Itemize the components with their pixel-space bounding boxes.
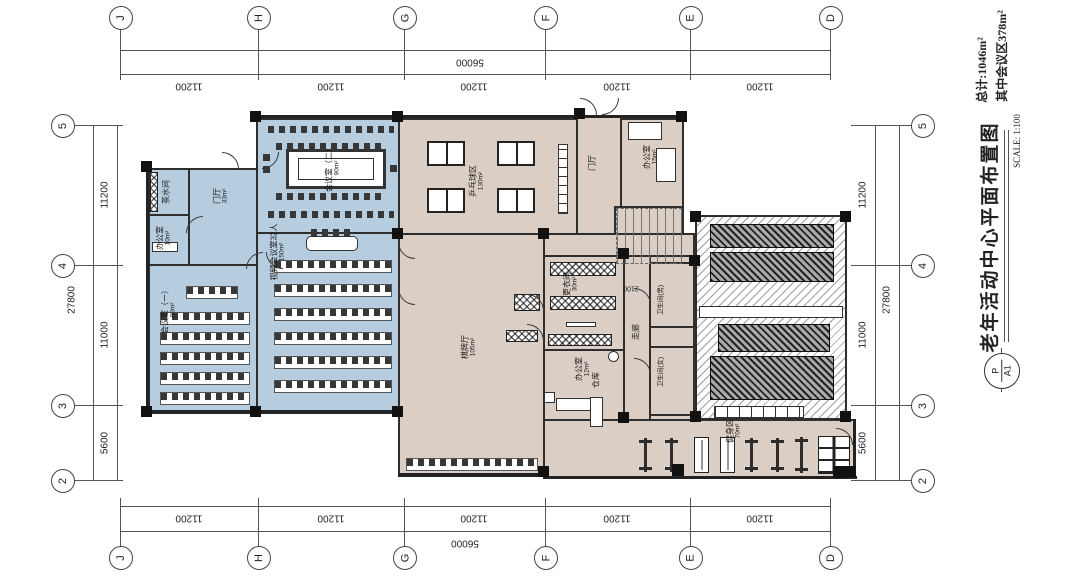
- wall: [398, 473, 547, 477]
- grid-leader: [830, 28, 831, 80]
- grid-leader: [830, 498, 831, 546]
- title-underline: [1008, 130, 1009, 342]
- room-area: 12m²: [584, 357, 591, 381]
- hatched-element: [710, 252, 834, 282]
- grid-bubble-J-bottom: J: [109, 546, 133, 570]
- room-toilet-female: [649, 346, 695, 416]
- chair-row: [311, 229, 353, 236]
- label-office-15: 办公室15m²: [643, 145, 660, 169]
- grid-leader: [73, 265, 123, 266]
- grid-number: 3: [57, 403, 69, 409]
- room-name: 棋牌厅: [461, 335, 470, 359]
- locker-shelf: [550, 262, 616, 276]
- room-toilet-male: [649, 262, 695, 328]
- grid-leader: [851, 480, 911, 481]
- label-locker: 更衣间30m²: [563, 272, 580, 296]
- desk-row: [160, 352, 250, 365]
- scale-label: SCALE: 1:100: [1012, 114, 1022, 168]
- side-counter: [558, 144, 568, 214]
- grid-bubble-G-top: G: [393, 6, 417, 30]
- pingpong-table: [497, 188, 535, 213]
- dim-line: [117, 125, 118, 480]
- column: [250, 111, 261, 122]
- dim-line: [899, 125, 900, 480]
- grid-number: 5: [57, 123, 69, 129]
- label-foyer-left: 门厅33m²: [213, 188, 230, 204]
- chair: [390, 165, 397, 172]
- grid-letter: E: [685, 554, 697, 561]
- grid-bubble-4-left: 4: [51, 254, 75, 278]
- hatched-element: [710, 356, 834, 400]
- grid-bubble-H-top: H: [247, 6, 271, 30]
- desk-row: [274, 284, 392, 297]
- bench-row: [406, 458, 538, 471]
- grid-leader: [258, 498, 259, 546]
- fitness-machine: [776, 438, 779, 472]
- desk-row: [274, 260, 392, 273]
- label-corridor: 走廊: [631, 324, 640, 340]
- door-arc: [580, 98, 597, 115]
- floor-plan-sheet: 56000 11200 11200 11200 11200 11200 1120…: [0, 0, 1074, 576]
- room-name: 仓库: [591, 372, 600, 388]
- existing-corridor: [699, 306, 843, 318]
- room-name: 卫生间(男): [657, 285, 664, 315]
- grid-bubble-2-right: 2: [911, 469, 935, 493]
- grid-bubble-F-top: F: [534, 6, 558, 30]
- dim-bottom: 11200: [317, 513, 344, 524]
- room-name: 门厅: [587, 155, 596, 171]
- grid-number: 2: [917, 478, 929, 484]
- label-tea-room: 茶水间: [161, 180, 170, 204]
- room-name: 会议室（一）: [161, 286, 170, 334]
- grid-bubble-4-right: 4: [911, 254, 935, 278]
- column: [250, 406, 261, 417]
- room-area: 150m²: [279, 224, 286, 281]
- desk-row: [274, 356, 392, 369]
- grid-letter: D: [825, 14, 837, 22]
- grid-letter: H: [253, 554, 265, 562]
- label-office-10: 办公室10m²: [156, 226, 173, 250]
- grid-letter: H: [253, 14, 265, 22]
- desk-row: [160, 392, 250, 405]
- dim-line: [93, 125, 94, 480]
- round-table: [608, 351, 619, 362]
- label-office-12: 办公室12m²: [575, 357, 592, 381]
- bench: [566, 322, 596, 327]
- room-area: 15m²: [652, 145, 659, 169]
- dim-top: 11200: [317, 81, 344, 92]
- column: [690, 211, 701, 222]
- dim-corridor: 2100: [623, 285, 639, 292]
- column: [392, 228, 403, 239]
- wall: [146, 166, 149, 414]
- grid-bubble-D-bottom: D: [819, 546, 843, 570]
- stamp-code: P: [990, 360, 1002, 382]
- label-video-conference: 视频会议室32人150m²: [270, 224, 287, 281]
- armchair: [544, 392, 555, 403]
- grid-leader: [851, 125, 911, 126]
- column: [676, 111, 687, 122]
- grid-leader: [690, 28, 691, 80]
- room-name: 更衣间: [563, 272, 572, 296]
- title-underline: [1004, 130, 1005, 342]
- desk-row: [274, 308, 392, 321]
- room-name: 办公室: [575, 357, 584, 381]
- label-meeting-1: 会议室（一）80m²: [161, 286, 178, 334]
- column: [392, 406, 403, 417]
- column: [689, 255, 700, 266]
- grid-leader: [258, 28, 259, 80]
- wall: [146, 410, 402, 414]
- fitness-machine: [800, 437, 803, 473]
- wall: [543, 476, 857, 479]
- dim-line: [120, 506, 830, 507]
- drawing-number-stamp: P A1: [984, 353, 1020, 389]
- column: [141, 406, 152, 417]
- room-area: 30m²: [572, 272, 579, 296]
- dim-left: 11200: [99, 181, 111, 208]
- grid-leader: [690, 498, 691, 546]
- dim-top: 11200: [175, 81, 202, 92]
- grid-number: 3: [917, 403, 929, 409]
- room-name: 视频会议室32人: [270, 224, 279, 281]
- grid-bubble-F-bottom: F: [534, 546, 558, 570]
- label-storage: 仓库: [591, 372, 600, 388]
- grid-number: 4: [57, 263, 69, 269]
- dim-right: 11000: [857, 321, 869, 348]
- room-name: 健身区: [726, 419, 735, 443]
- note-total-area: 总计:1046m²: [976, 37, 990, 103]
- note-meeting-area: 其中会议区378m²: [996, 10, 1010, 102]
- door-arc: [602, 98, 619, 115]
- locker-shelf: [550, 296, 616, 310]
- cabinet: [590, 397, 603, 427]
- column: [141, 161, 152, 172]
- dim-left: 11000: [99, 321, 111, 348]
- grid-letter: G: [399, 14, 411, 23]
- grid-bubble-H-bottom: H: [247, 546, 271, 570]
- room-area: 105m²: [470, 335, 477, 359]
- dim-left: 5600: [99, 432, 111, 454]
- grid-leader: [851, 405, 911, 406]
- hatched-element: [710, 224, 834, 248]
- room-table-tennis: [398, 118, 578, 235]
- window-band: [714, 406, 804, 418]
- pingpong-table: [427, 188, 465, 213]
- grid-number: 2: [57, 478, 69, 484]
- column: [840, 411, 851, 422]
- grid-leader: [545, 498, 546, 546]
- grid-leader: [73, 125, 123, 126]
- locker-shelf: [548, 334, 612, 346]
- office-desk: [628, 122, 662, 140]
- stamp-sheet-size: A1: [1002, 365, 1013, 376]
- pingpong-table: [497, 141, 535, 166]
- room-area: 10m²: [165, 226, 172, 250]
- exercise-bike: [644, 438, 647, 472]
- grid-letter: J: [115, 555, 127, 561]
- grid-leader: [851, 265, 911, 266]
- fitness-machine: [750, 438, 753, 472]
- column: [618, 248, 629, 259]
- room-name: 办公室: [156, 226, 165, 250]
- dim-bottom: 11200: [603, 513, 630, 524]
- grid-number: 5: [917, 123, 929, 129]
- grid-letter: E: [685, 14, 697, 21]
- room-area: 90m²: [334, 144, 341, 192]
- grid-bubble-5-left: 5: [51, 114, 75, 138]
- pingpong-table: [427, 141, 465, 166]
- grid-leader: [73, 405, 123, 406]
- grid-leader: [404, 498, 405, 546]
- dim-bottom: 11200: [460, 513, 487, 524]
- grid-leader: [404, 28, 405, 80]
- grid-bubble-E-bottom: E: [679, 546, 703, 570]
- room-area: 70m²: [735, 419, 742, 443]
- column: [538, 466, 549, 477]
- dim-line: [120, 74, 830, 75]
- grid-letter: G: [399, 554, 411, 563]
- grid-bubble-2-left: 2: [51, 469, 75, 493]
- column: [690, 411, 701, 422]
- treadmill: [694, 437, 709, 473]
- room-name: 会议室（二）: [325, 144, 334, 192]
- desk-row: [274, 380, 392, 393]
- head-table: [306, 236, 358, 251]
- label-chess-hall: 棋牌厅105m²: [461, 335, 478, 359]
- tea-counter: [150, 172, 158, 212]
- dim-right: 11200: [857, 181, 869, 208]
- grid-letter: D: [825, 554, 837, 562]
- dim-total-left: 27800: [66, 286, 78, 314]
- dim-right: 5600: [857, 432, 869, 454]
- column: [392, 111, 403, 122]
- grid-bubble-E-top: E: [679, 6, 703, 30]
- grid-leader: [545, 28, 546, 80]
- column: [538, 228, 549, 239]
- grid-bubble-J-top: J: [109, 6, 133, 30]
- column: [840, 211, 851, 222]
- dim-line: [120, 50, 830, 51]
- stamp-content: P A1: [990, 360, 1014, 382]
- room-area: 130m²: [478, 165, 485, 197]
- grid-leader: [120, 498, 121, 546]
- dim-top: 11200: [460, 81, 487, 92]
- grid-letter: F: [540, 15, 552, 22]
- room-name: 茶水间: [161, 180, 170, 204]
- label-table-tennis: 乒乓球区130m²: [469, 165, 486, 197]
- label-meeting-2: 会议室（二）90m²: [325, 144, 342, 192]
- room-name: 走廊: [631, 324, 640, 340]
- grid-bubble-3-left: 3: [51, 394, 75, 418]
- label-toilet-male: 卫生间(男): [657, 285, 664, 315]
- dim-total-right: 27800: [881, 286, 893, 314]
- grid-bubble-5-right: 5: [911, 114, 935, 138]
- column: [618, 412, 629, 423]
- chair-row: [276, 193, 386, 200]
- door-arc: [222, 152, 239, 169]
- desk-row: [160, 372, 250, 385]
- room-name: 门厅: [213, 188, 222, 204]
- room-area: 33m²: [222, 188, 229, 204]
- wall: [256, 115, 686, 118]
- chair-row: [268, 126, 394, 133]
- desk-row: [274, 332, 392, 345]
- equipment-block: [672, 464, 684, 476]
- grid-letter: F: [540, 555, 552, 562]
- dim-line: [120, 531, 830, 532]
- dim-total-bottom: 56000: [451, 538, 479, 549]
- dim-bottom: 11200: [746, 513, 773, 524]
- dim-bottom: 11200: [175, 513, 202, 524]
- grid-bubble-D-top: D: [819, 6, 843, 30]
- drawing-title: 老年活动中心平面布置图: [980, 121, 1002, 352]
- dim-line: [875, 125, 876, 480]
- head-desk-row: [186, 286, 238, 299]
- grid-number: 4: [917, 263, 929, 269]
- grid-letter: J: [115, 15, 127, 21]
- label-foyer-right: 门厅: [587, 155, 596, 171]
- chair-row: [268, 211, 394, 218]
- grid-bubble-G-bottom: G: [393, 546, 417, 570]
- dim-total-top: 56000: [456, 57, 484, 68]
- hatched-element: [718, 324, 830, 352]
- dim-top: 11200: [746, 81, 773, 92]
- label-toilet-female: 卫生间(女): [657, 357, 664, 387]
- room-name: 乒乓球区: [469, 165, 478, 197]
- grid-leader: [120, 28, 121, 80]
- room-name: 卫生间(女): [657, 357, 664, 387]
- grid-bubble-3-right: 3: [911, 394, 935, 418]
- label-fitness: 健身区70m²: [726, 419, 743, 443]
- column: [845, 466, 856, 477]
- room-name: 办公室: [643, 145, 652, 169]
- dim-top: 11200: [603, 81, 630, 92]
- grid-leader: [73, 480, 123, 481]
- room-area: 80m²: [170, 286, 177, 334]
